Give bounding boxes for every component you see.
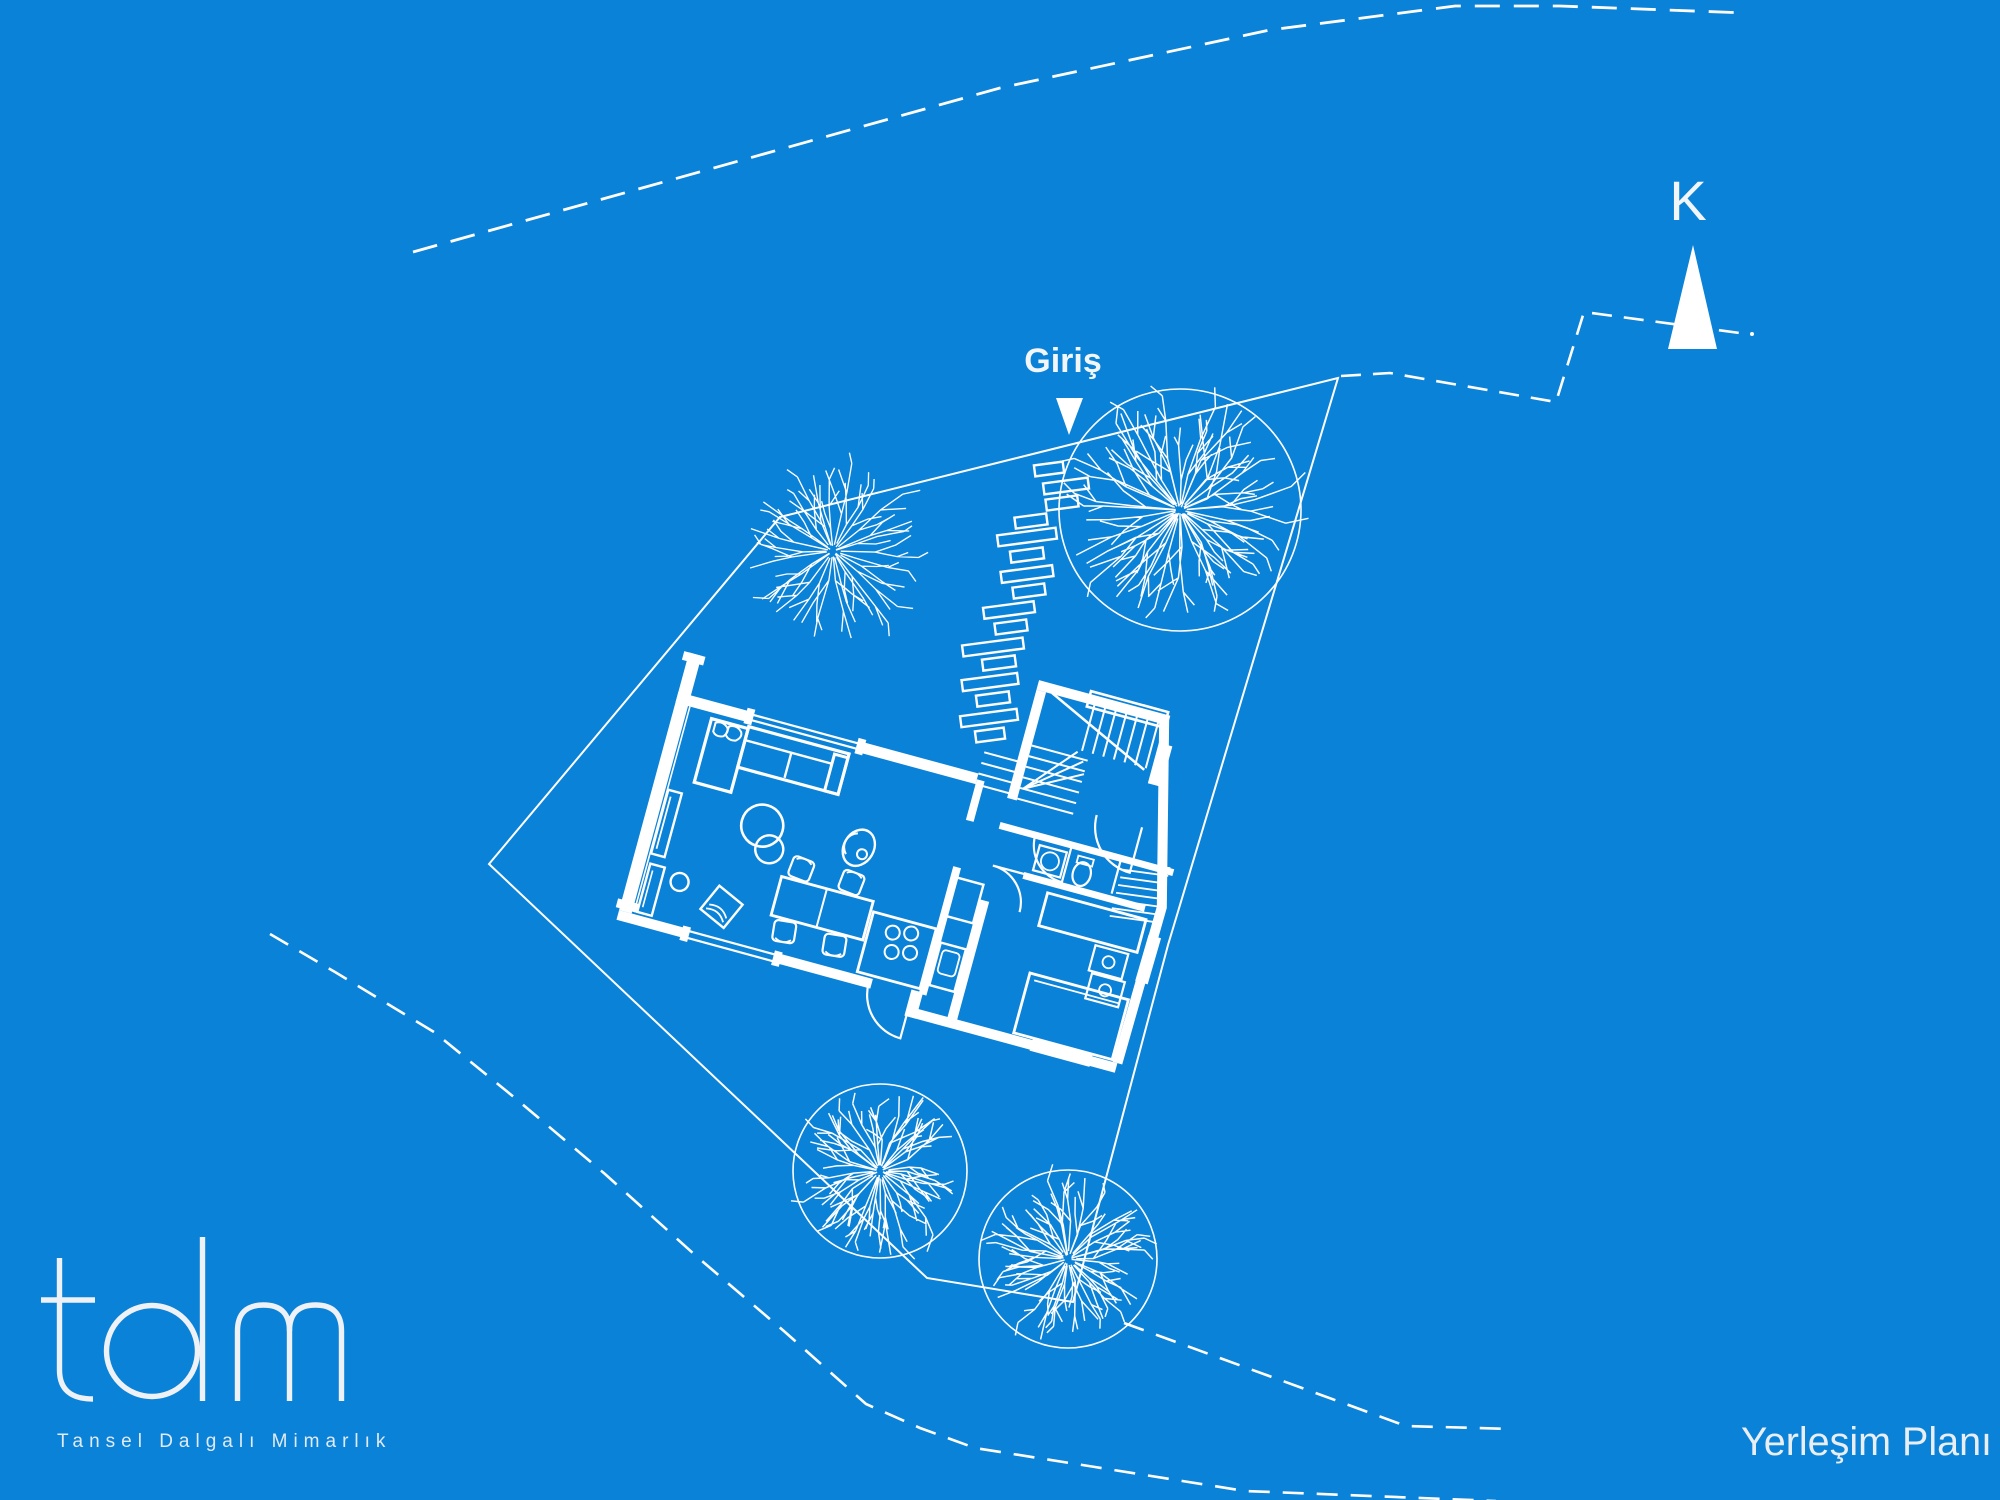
svg-text:K: K (1669, 169, 1706, 232)
svg-text:Tansel Dalgalı Mimarlık: Tansel Dalgalı Mimarlık (57, 1431, 391, 1452)
svg-text:Yerleşim Planı: Yerleşim Planı (1741, 1420, 1992, 1464)
svg-text:Giriş: Giriş (1024, 342, 1101, 380)
